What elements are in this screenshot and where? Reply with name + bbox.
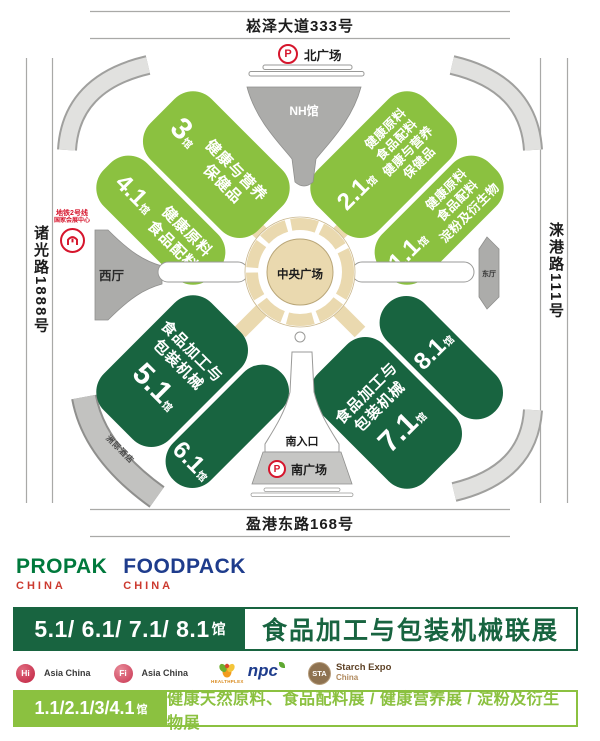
west-hall-label: 西厅 [99, 265, 124, 284]
ingredients-banner: 1.1/2.1/3/4.1 馆 健康天然原料、食品配料展 / 健康营养展 / 淀… [13, 690, 578, 727]
south-plaza-label: P 南广场 [268, 460, 327, 478]
metro-station: 地铁2号线 国家会展中心 [42, 210, 102, 253]
hall-2-1-number: 2.1馆 [333, 167, 381, 215]
hall-1-1-number: 1.1馆 [384, 227, 432, 275]
foodpack-china-logo: FOODPACK CHINA [123, 556, 246, 592]
metro-station-label: 国家会展中心 [42, 218, 102, 225]
parking-icon: P [268, 460, 286, 478]
banner2-title: 健康天然原料、食品配料展 / 健康营养展 / 淀粉及衍生物展 [167, 692, 576, 725]
hi-asia-china-icon: Hi [16, 664, 35, 683]
processing-packaging-banner: 5.1/ 6.1/ 7.1/ 8.1 馆 食品加工与包装机械联展 [13, 607, 578, 651]
sta-icon: STA [308, 662, 331, 685]
banner2-halls: 1.1/2.1/3/4.1 馆 [15, 692, 167, 725]
road-east: 涞港路111号 [545, 222, 566, 319]
hall-4-1-number: 4.1馆 [111, 170, 159, 218]
road-south: 盈港东路168号 [0, 513, 600, 534]
healthplex-bird-icon: HEALTHPLEX [211, 662, 244, 684]
metro-logo-icon [60, 228, 85, 253]
hall-3-number: 3馆 [164, 113, 205, 154]
banner1-title: 食品加工与包装机械联展 [245, 609, 576, 649]
east-hall-label: 东厅 [482, 269, 496, 279]
fi-asia-china-icon: Fi [114, 664, 133, 683]
starch-expo-logo: STA Starch Expo China [308, 662, 391, 685]
propak-china-logo: PROPAK CHINA [16, 556, 107, 592]
road-north: 崧泽大道333号 [0, 15, 600, 36]
npc-leaf-icon [279, 662, 285, 668]
central-plaza-label: 中央广场 [268, 266, 332, 282]
hall-3-topics: 健康与营养保健品 [187, 136, 271, 220]
south-entrance-label: 南入口 [282, 433, 322, 449]
banner1-halls: 5.1/ 6.1/ 7.1/ 8.1 馆 [15, 609, 245, 649]
venue-map: 3馆 健康与营养保健品 4.1馆 健康原料食品配料 2.1馆 健康原料食品配料 … [0, 0, 600, 545]
hnc-npc-logo: HEALTHPLEX npc [211, 662, 285, 684]
hall-8-1-number: 8.1馆 [410, 326, 458, 374]
parking-icon: P [278, 44, 298, 64]
nh-hall-label: NH馆 [281, 102, 327, 119]
co-located-shows: Hi Asia China Fi Asia China HEALTHPLEX n… [16, 659, 391, 687]
organizer-logos: PROPAK CHINA FOODPACK CHINA [16, 556, 246, 592]
north-plaza-label: P 北广场 [278, 44, 342, 64]
hall-6-1-number: 6.1馆 [168, 437, 216, 485]
